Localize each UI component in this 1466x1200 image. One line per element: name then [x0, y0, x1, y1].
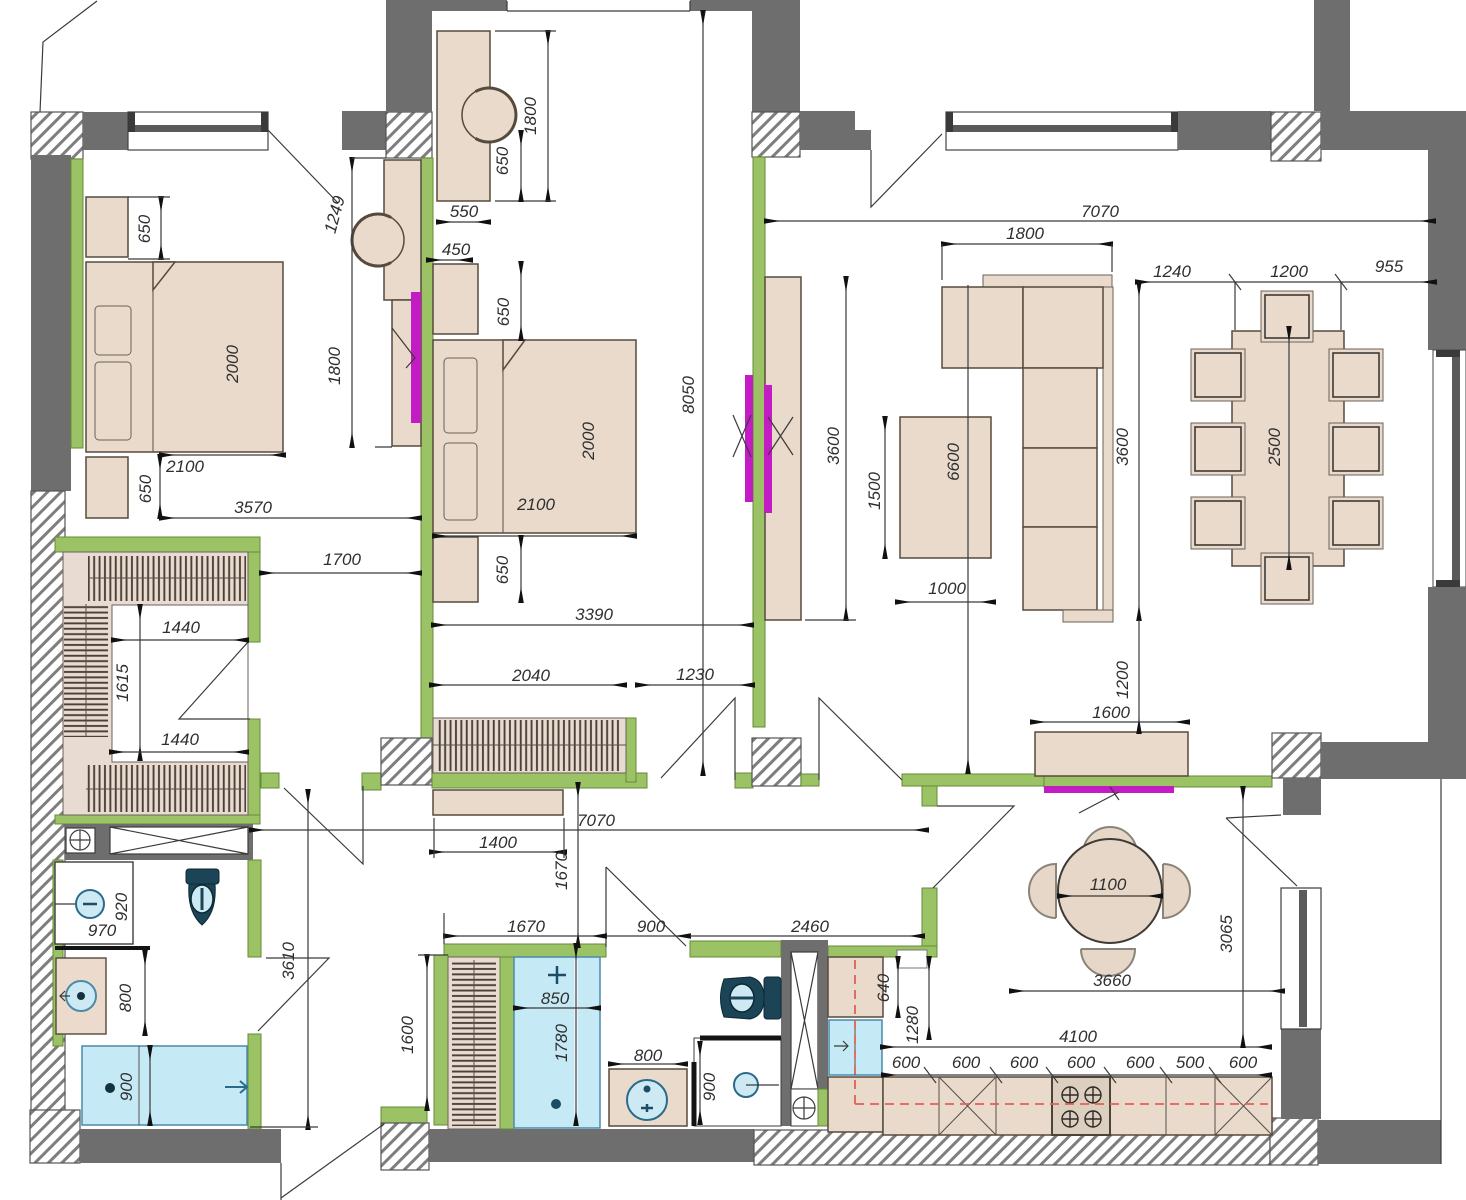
svg-text:955: 955	[1375, 257, 1404, 276]
svg-text:3600: 3600	[824, 427, 843, 465]
svg-text:1700: 1700	[323, 550, 361, 569]
svg-text:3600: 3600	[1113, 428, 1132, 466]
svg-text:8050: 8050	[679, 376, 698, 414]
svg-text:920: 920	[112, 892, 131, 921]
svg-text:1600: 1600	[398, 1016, 417, 1054]
svg-text:650: 650	[135, 214, 154, 243]
svg-text:1000: 1000	[928, 579, 966, 598]
svg-text:7070: 7070	[577, 811, 615, 830]
svg-text:2000: 2000	[579, 422, 598, 461]
svg-text:2460: 2460	[790, 917, 829, 936]
svg-text:1615: 1615	[113, 664, 132, 702]
svg-text:1600: 1600	[1092, 703, 1130, 722]
svg-text:550: 550	[450, 202, 479, 221]
svg-text:1280: 1280	[903, 1006, 922, 1044]
svg-text:2500: 2500	[1265, 428, 1284, 467]
svg-text:1440: 1440	[162, 618, 200, 637]
svg-text:650: 650	[494, 297, 513, 326]
svg-text:600: 600	[952, 1053, 981, 1072]
svg-text:600: 600	[1229, 1053, 1258, 1072]
svg-text:1670: 1670	[507, 917, 545, 936]
svg-text:650: 650	[136, 474, 155, 503]
svg-text:2100: 2100	[165, 457, 204, 476]
svg-text:1200: 1200	[1113, 661, 1132, 699]
svg-text:3660: 3660	[1093, 971, 1131, 990]
svg-text:3570: 3570	[234, 498, 272, 517]
svg-text:800: 800	[116, 983, 135, 1012]
svg-text:970: 970	[88, 921, 117, 940]
svg-text:800: 800	[634, 1046, 663, 1065]
svg-text:1240: 1240	[1153, 262, 1191, 281]
svg-text:1230: 1230	[676, 665, 714, 684]
svg-text:900: 900	[637, 917, 666, 936]
svg-text:1800: 1800	[521, 97, 540, 135]
svg-text:3390: 3390	[575, 605, 613, 624]
svg-text:500: 500	[1176, 1053, 1205, 1072]
svg-text:4100: 4100	[1059, 1027, 1097, 1046]
svg-text:450: 450	[442, 240, 471, 259]
svg-text:2040: 2040	[511, 666, 550, 685]
svg-text:1440: 1440	[161, 730, 199, 749]
svg-text:1400: 1400	[479, 833, 517, 852]
svg-text:2100: 2100	[516, 495, 555, 514]
svg-text:1200: 1200	[1270, 262, 1308, 281]
svg-text:1800: 1800	[325, 347, 344, 385]
svg-text:2000: 2000	[223, 345, 242, 384]
svg-text:600: 600	[1010, 1053, 1039, 1072]
svg-text:1780: 1780	[552, 1024, 571, 1062]
svg-text:1800: 1800	[1006, 224, 1044, 243]
svg-text:650: 650	[493, 146, 512, 175]
svg-text:1100: 1100	[1090, 875, 1127, 894]
svg-text:900: 900	[700, 1072, 719, 1101]
svg-text:6600: 6600	[944, 443, 963, 481]
svg-text:650: 650	[493, 555, 512, 584]
svg-text:1500: 1500	[865, 472, 884, 510]
svg-text:850: 850	[541, 989, 570, 1008]
svg-text:640: 640	[874, 973, 893, 1002]
svg-text:600: 600	[1067, 1053, 1096, 1072]
svg-text:3065: 3065	[1217, 915, 1236, 953]
svg-text:3610: 3610	[279, 942, 298, 980]
svg-text:1670: 1670	[552, 852, 571, 890]
svg-text:7070: 7070	[1081, 202, 1119, 221]
svg-text:600: 600	[892, 1053, 921, 1072]
svg-text:900: 900	[117, 1072, 136, 1101]
svg-text:600: 600	[1126, 1053, 1155, 1072]
